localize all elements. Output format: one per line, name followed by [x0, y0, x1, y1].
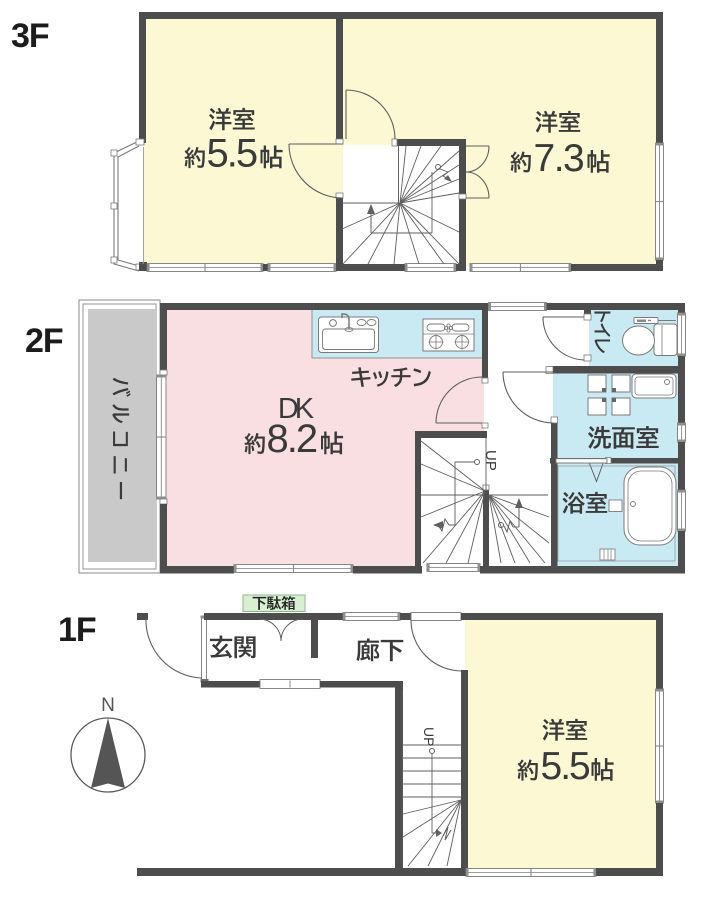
- svg-text:2F: 2F: [25, 322, 63, 360]
- svg-text:3F: 3F: [11, 17, 49, 55]
- svg-text:8.2: 8.2: [267, 417, 317, 461]
- svg-text:UP: UP: [482, 450, 499, 471]
- svg-text:5.5: 5.5: [541, 745, 591, 788]
- svg-text:UP: UP: [421, 727, 437, 746]
- svg-text:N: N: [101, 695, 115, 716]
- svg-text:7.3: 7.3: [534, 137, 584, 180]
- svg-text:5.5: 5.5: [207, 132, 257, 176]
- svg-text:1F: 1F: [58, 611, 96, 649]
